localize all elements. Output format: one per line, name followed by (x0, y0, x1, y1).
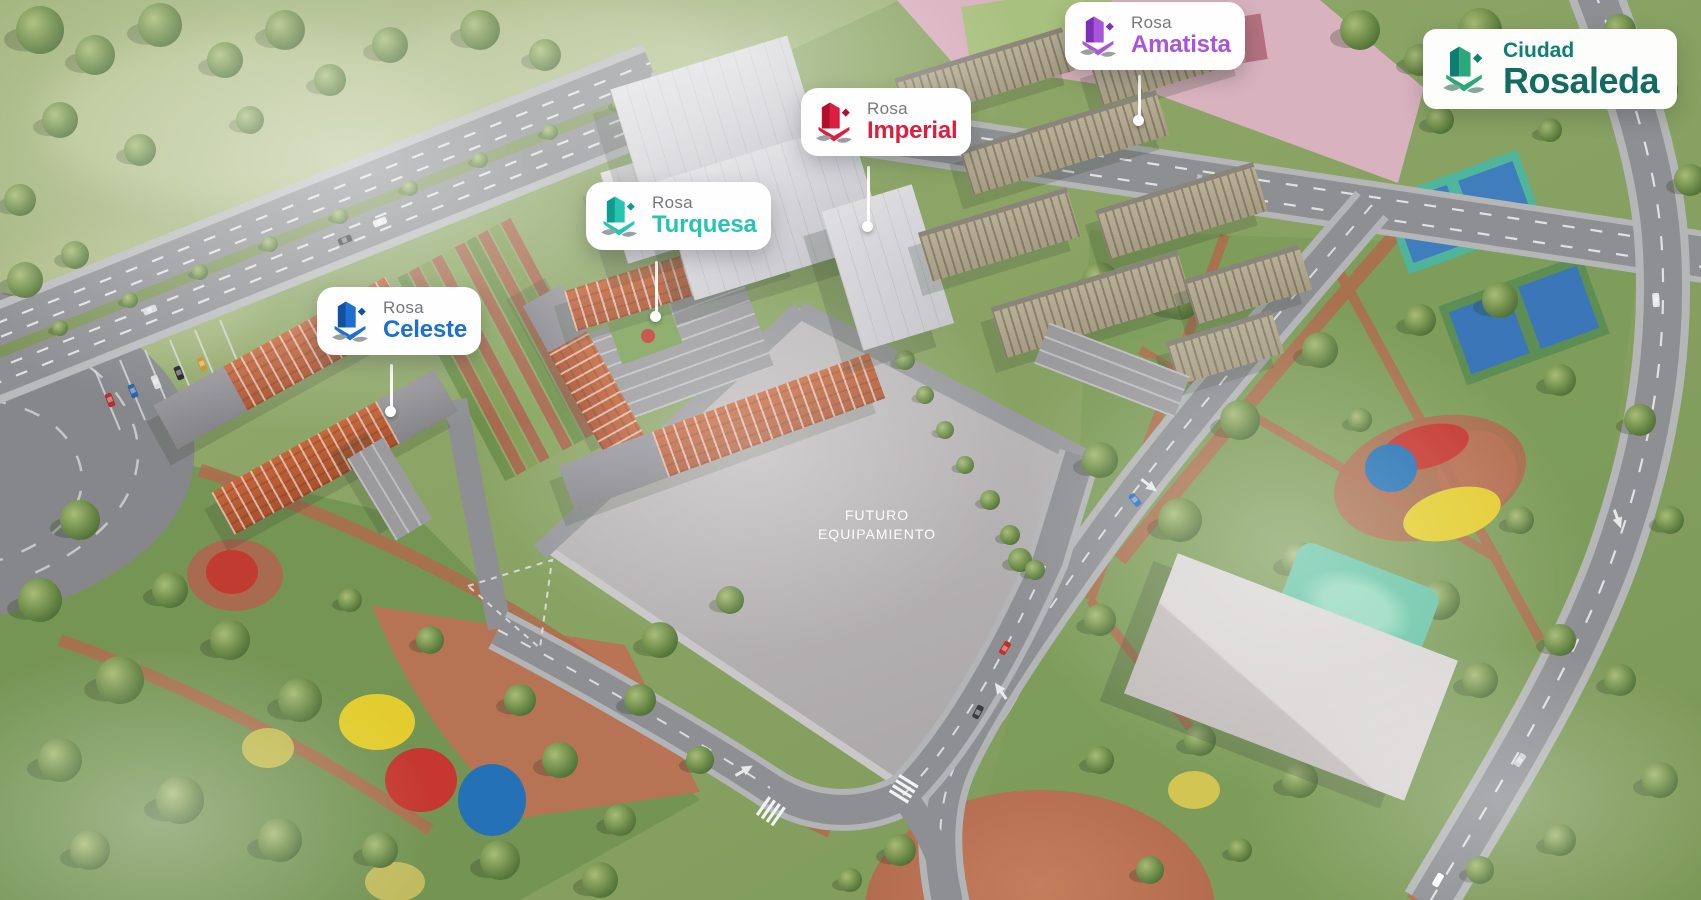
future-facility-label-line2: EQUIPAMIENTO (787, 525, 967, 544)
badge-line1: Rosa (383, 299, 467, 317)
badge-line1: Rosa (1131, 14, 1231, 32)
ciudad-rosaleda-logo-card: Ciudad Rosaleda (1423, 29, 1677, 109)
courtyard-playground (641, 329, 655, 343)
badge-pointer-line (1138, 75, 1141, 117)
badge-line2: Amatista (1131, 32, 1231, 57)
badge-pointer-dot (862, 221, 873, 232)
rosa-amatista-icon (1075, 10, 1121, 62)
ciudad-rosaleda-icon (1437, 39, 1491, 99)
future-facility-label-line1: FUTURO (787, 506, 967, 525)
masterplan-render: FUTURO EQUIPAMIENTO Rosa Celeste Rosa Tu… (0, 0, 1701, 900)
badge-line1: Rosa (652, 194, 757, 212)
project-badge-rosa-imperial[interactable]: Rosa Imperial (801, 88, 971, 156)
rosa-imperial-icon (811, 96, 857, 148)
project-badge-rosa-amatista[interactable]: Rosa Amatista (1065, 2, 1245, 70)
badge-pointer-dot (650, 311, 661, 322)
project-badge-rosa-celeste[interactable]: Rosa Celeste (317, 287, 481, 355)
future-facility-label: FUTURO EQUIPAMIENTO (787, 506, 967, 544)
badge-pointer-line (867, 166, 870, 223)
rosa-turquesa-icon (596, 190, 642, 242)
logo-line2: Rosaleda (1503, 63, 1659, 99)
badge-line2: Celeste (383, 317, 467, 342)
rosa-celeste-icon (327, 295, 373, 347)
badge-pointer-dot (385, 406, 396, 417)
badge-pointer-line (390, 364, 393, 408)
badge-line2: Turquesa (652, 212, 757, 237)
badge-line2: Imperial (867, 118, 957, 143)
badge-pointer-line (655, 261, 658, 313)
project-badge-rosa-turquesa[interactable]: Rosa Turquesa (586, 182, 771, 250)
badge-pointer-dot (1133, 115, 1144, 126)
badge-line1: Rosa (867, 100, 957, 118)
